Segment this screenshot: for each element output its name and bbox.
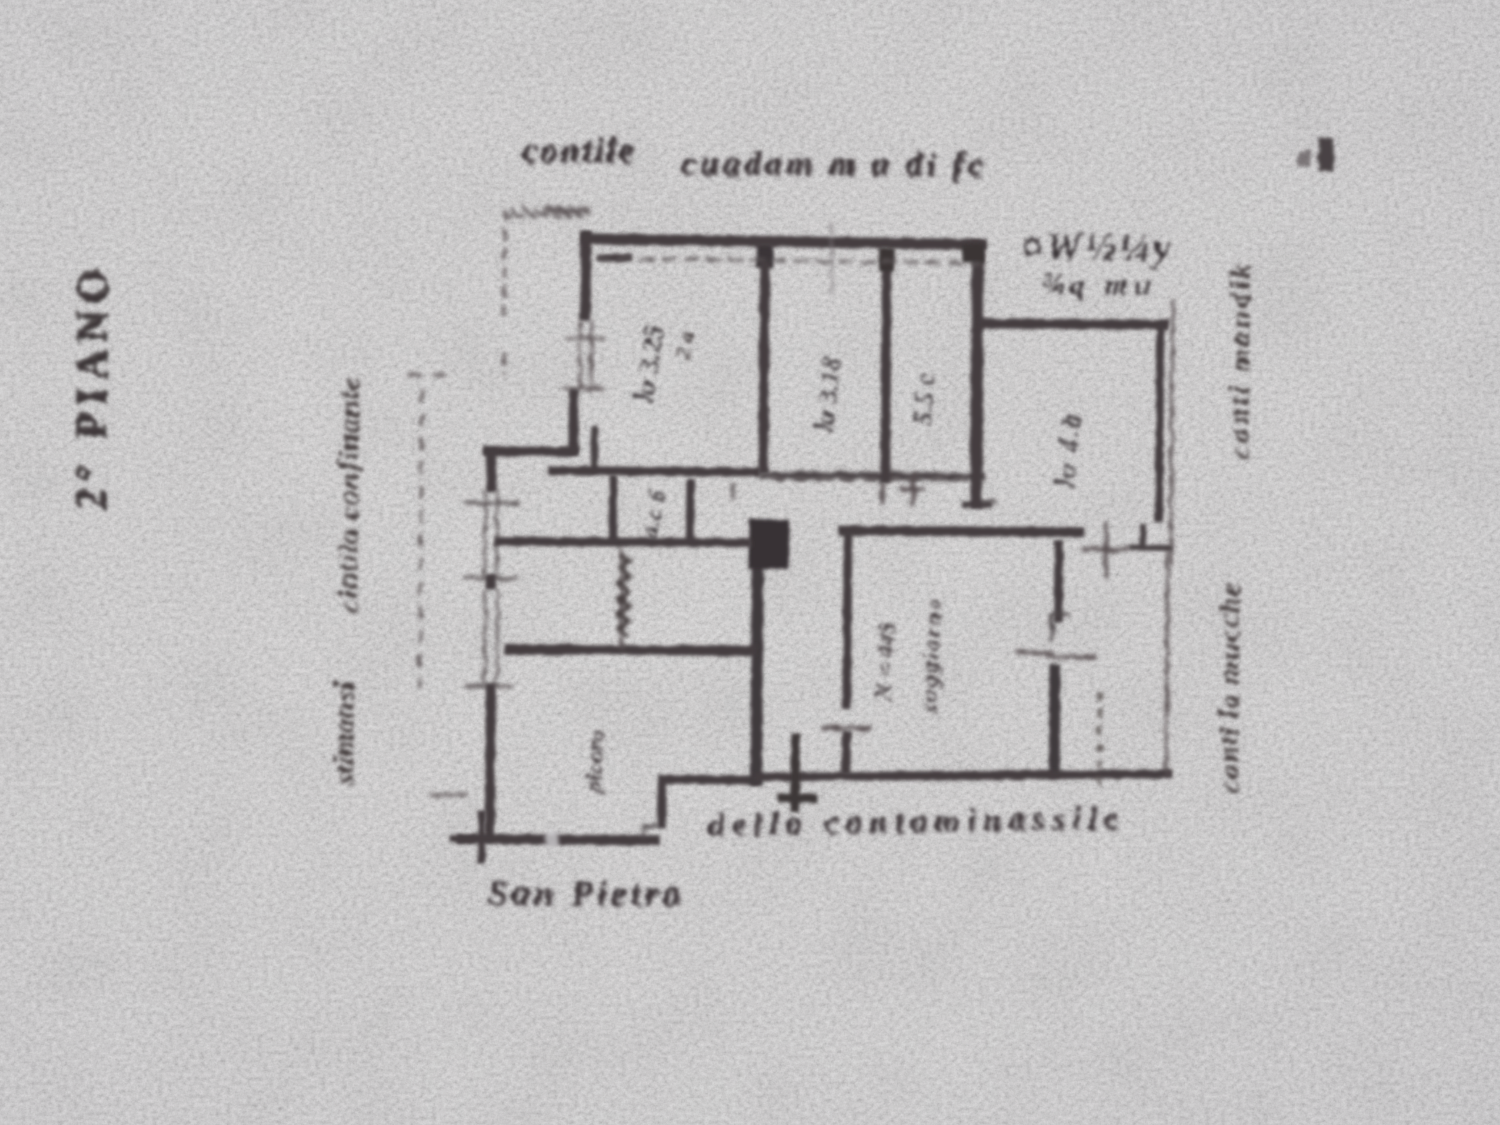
svg-text:soggiorno: soggiorno bbox=[917, 596, 948, 715]
svg-text:San Pietro: San Pietro bbox=[489, 874, 686, 915]
svg-text:5.5 c: 5.5 c bbox=[908, 373, 941, 426]
svg-text:¾q mu: ¾q mu bbox=[1042, 268, 1157, 302]
svg-text:cuadam m a di fc: cuadam m a di fc bbox=[682, 146, 988, 185]
svg-text:¤W½¼y: ¤W½¼y bbox=[1022, 224, 1176, 270]
svg-text:stimansi: stimansi bbox=[327, 681, 361, 786]
svg-text:conti mandik: conti mandik bbox=[1222, 261, 1256, 460]
svg-text:2° PIANO: 2° PIANO bbox=[65, 261, 116, 510]
svg-text:conti la mucche: conti la mucche bbox=[1212, 582, 1246, 794]
svg-text:2 a: 2 a bbox=[669, 329, 699, 362]
svg-text:picoro: picoro bbox=[580, 729, 611, 795]
svg-text:contile: contile bbox=[523, 131, 637, 172]
svg-text:N = 445: N = 445 bbox=[871, 621, 902, 702]
svg-text:cintila confinante: cintila confinante bbox=[331, 376, 366, 613]
